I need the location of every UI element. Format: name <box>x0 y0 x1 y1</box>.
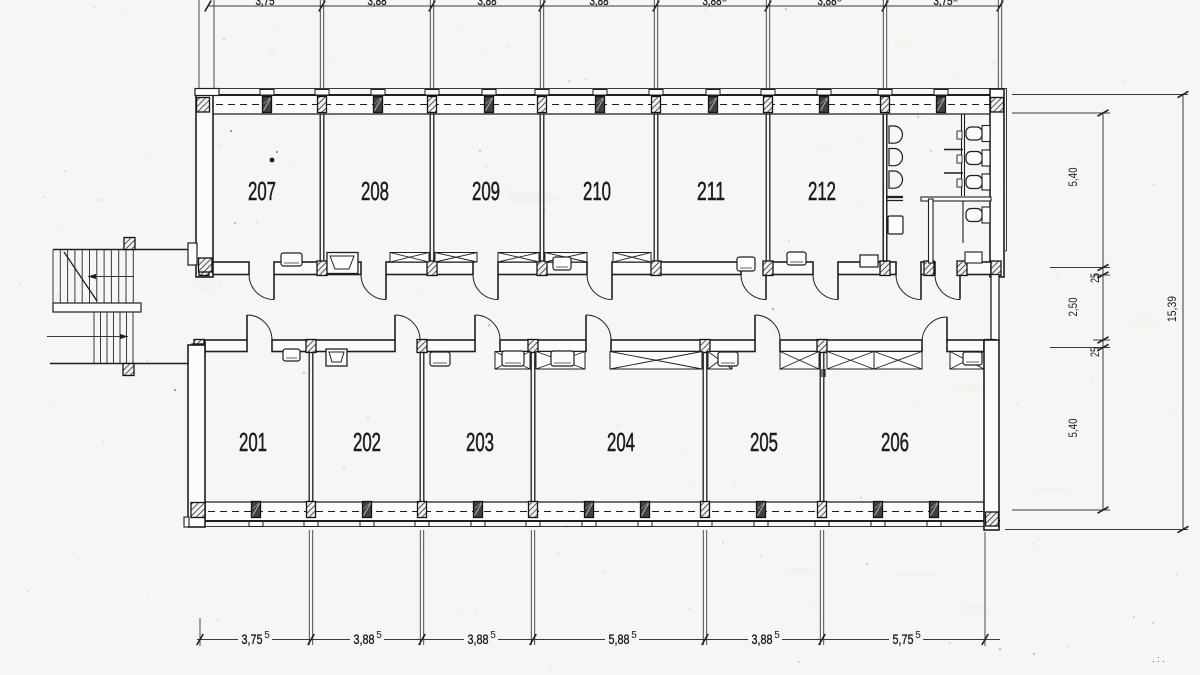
svg-text:5: 5 <box>915 630 921 641</box>
svg-text:2,50: 2,50 <box>1066 297 1080 316</box>
svg-text:5,75: 5,75 <box>893 632 914 647</box>
svg-text:210: 210 <box>583 176 611 206</box>
svg-text:15,39: 15,39 <box>1165 296 1179 322</box>
svg-text:209: 209 <box>472 176 500 206</box>
svg-text:25: 25 <box>1088 273 1102 283</box>
svg-text:211: 211 <box>697 176 725 206</box>
svg-text:201: 201 <box>239 427 267 457</box>
svg-text:.: . <box>1066 640 1068 649</box>
svg-text:3,88: 3,88 <box>752 632 773 647</box>
svg-text:5,40: 5,40 <box>1066 167 1080 186</box>
svg-text:3,88: 3,88 <box>368 0 387 8</box>
svg-text:203: 203 <box>466 427 494 457</box>
svg-text:3,75: 3,75 <box>256 0 275 8</box>
svg-text:. : .: . : . <box>1152 654 1165 664</box>
svg-text:5,88: 5,88 <box>609 632 630 647</box>
svg-text:5: 5 <box>837 0 842 4</box>
svg-text:5: 5 <box>953 0 958 4</box>
svg-text:5: 5 <box>264 630 270 641</box>
svg-text:5: 5 <box>631 630 637 641</box>
svg-text:5: 5 <box>490 630 496 641</box>
svg-text:3,88: 3,88 <box>818 0 837 8</box>
svg-text:208: 208 <box>361 176 389 206</box>
svg-text:205: 205 <box>750 427 778 457</box>
svg-text:3,88: 3,88 <box>354 632 375 647</box>
svg-text:212: 212 <box>808 176 836 206</box>
svg-text:204: 204 <box>607 427 635 457</box>
svg-text:5,40: 5,40 <box>1066 418 1080 437</box>
svg-text:3,75: 3,75 <box>242 632 263 647</box>
svg-text:25: 25 <box>1088 347 1102 357</box>
svg-text:5: 5 <box>376 630 382 641</box>
svg-text:207: 207 <box>248 176 276 206</box>
svg-text:3,88: 3,88 <box>703 0 722 8</box>
svg-text:3,88: 3,88 <box>478 0 497 8</box>
svg-text:3,75: 3,75 <box>934 0 953 8</box>
svg-text:3,88: 3,88 <box>468 632 489 647</box>
svg-text:3,88: 3,88 <box>590 0 609 8</box>
svg-text:206: 206 <box>881 427 909 457</box>
svg-text:202: 202 <box>353 427 381 457</box>
svg-text:5: 5 <box>774 630 780 641</box>
svg-text:5: 5 <box>722 0 727 4</box>
